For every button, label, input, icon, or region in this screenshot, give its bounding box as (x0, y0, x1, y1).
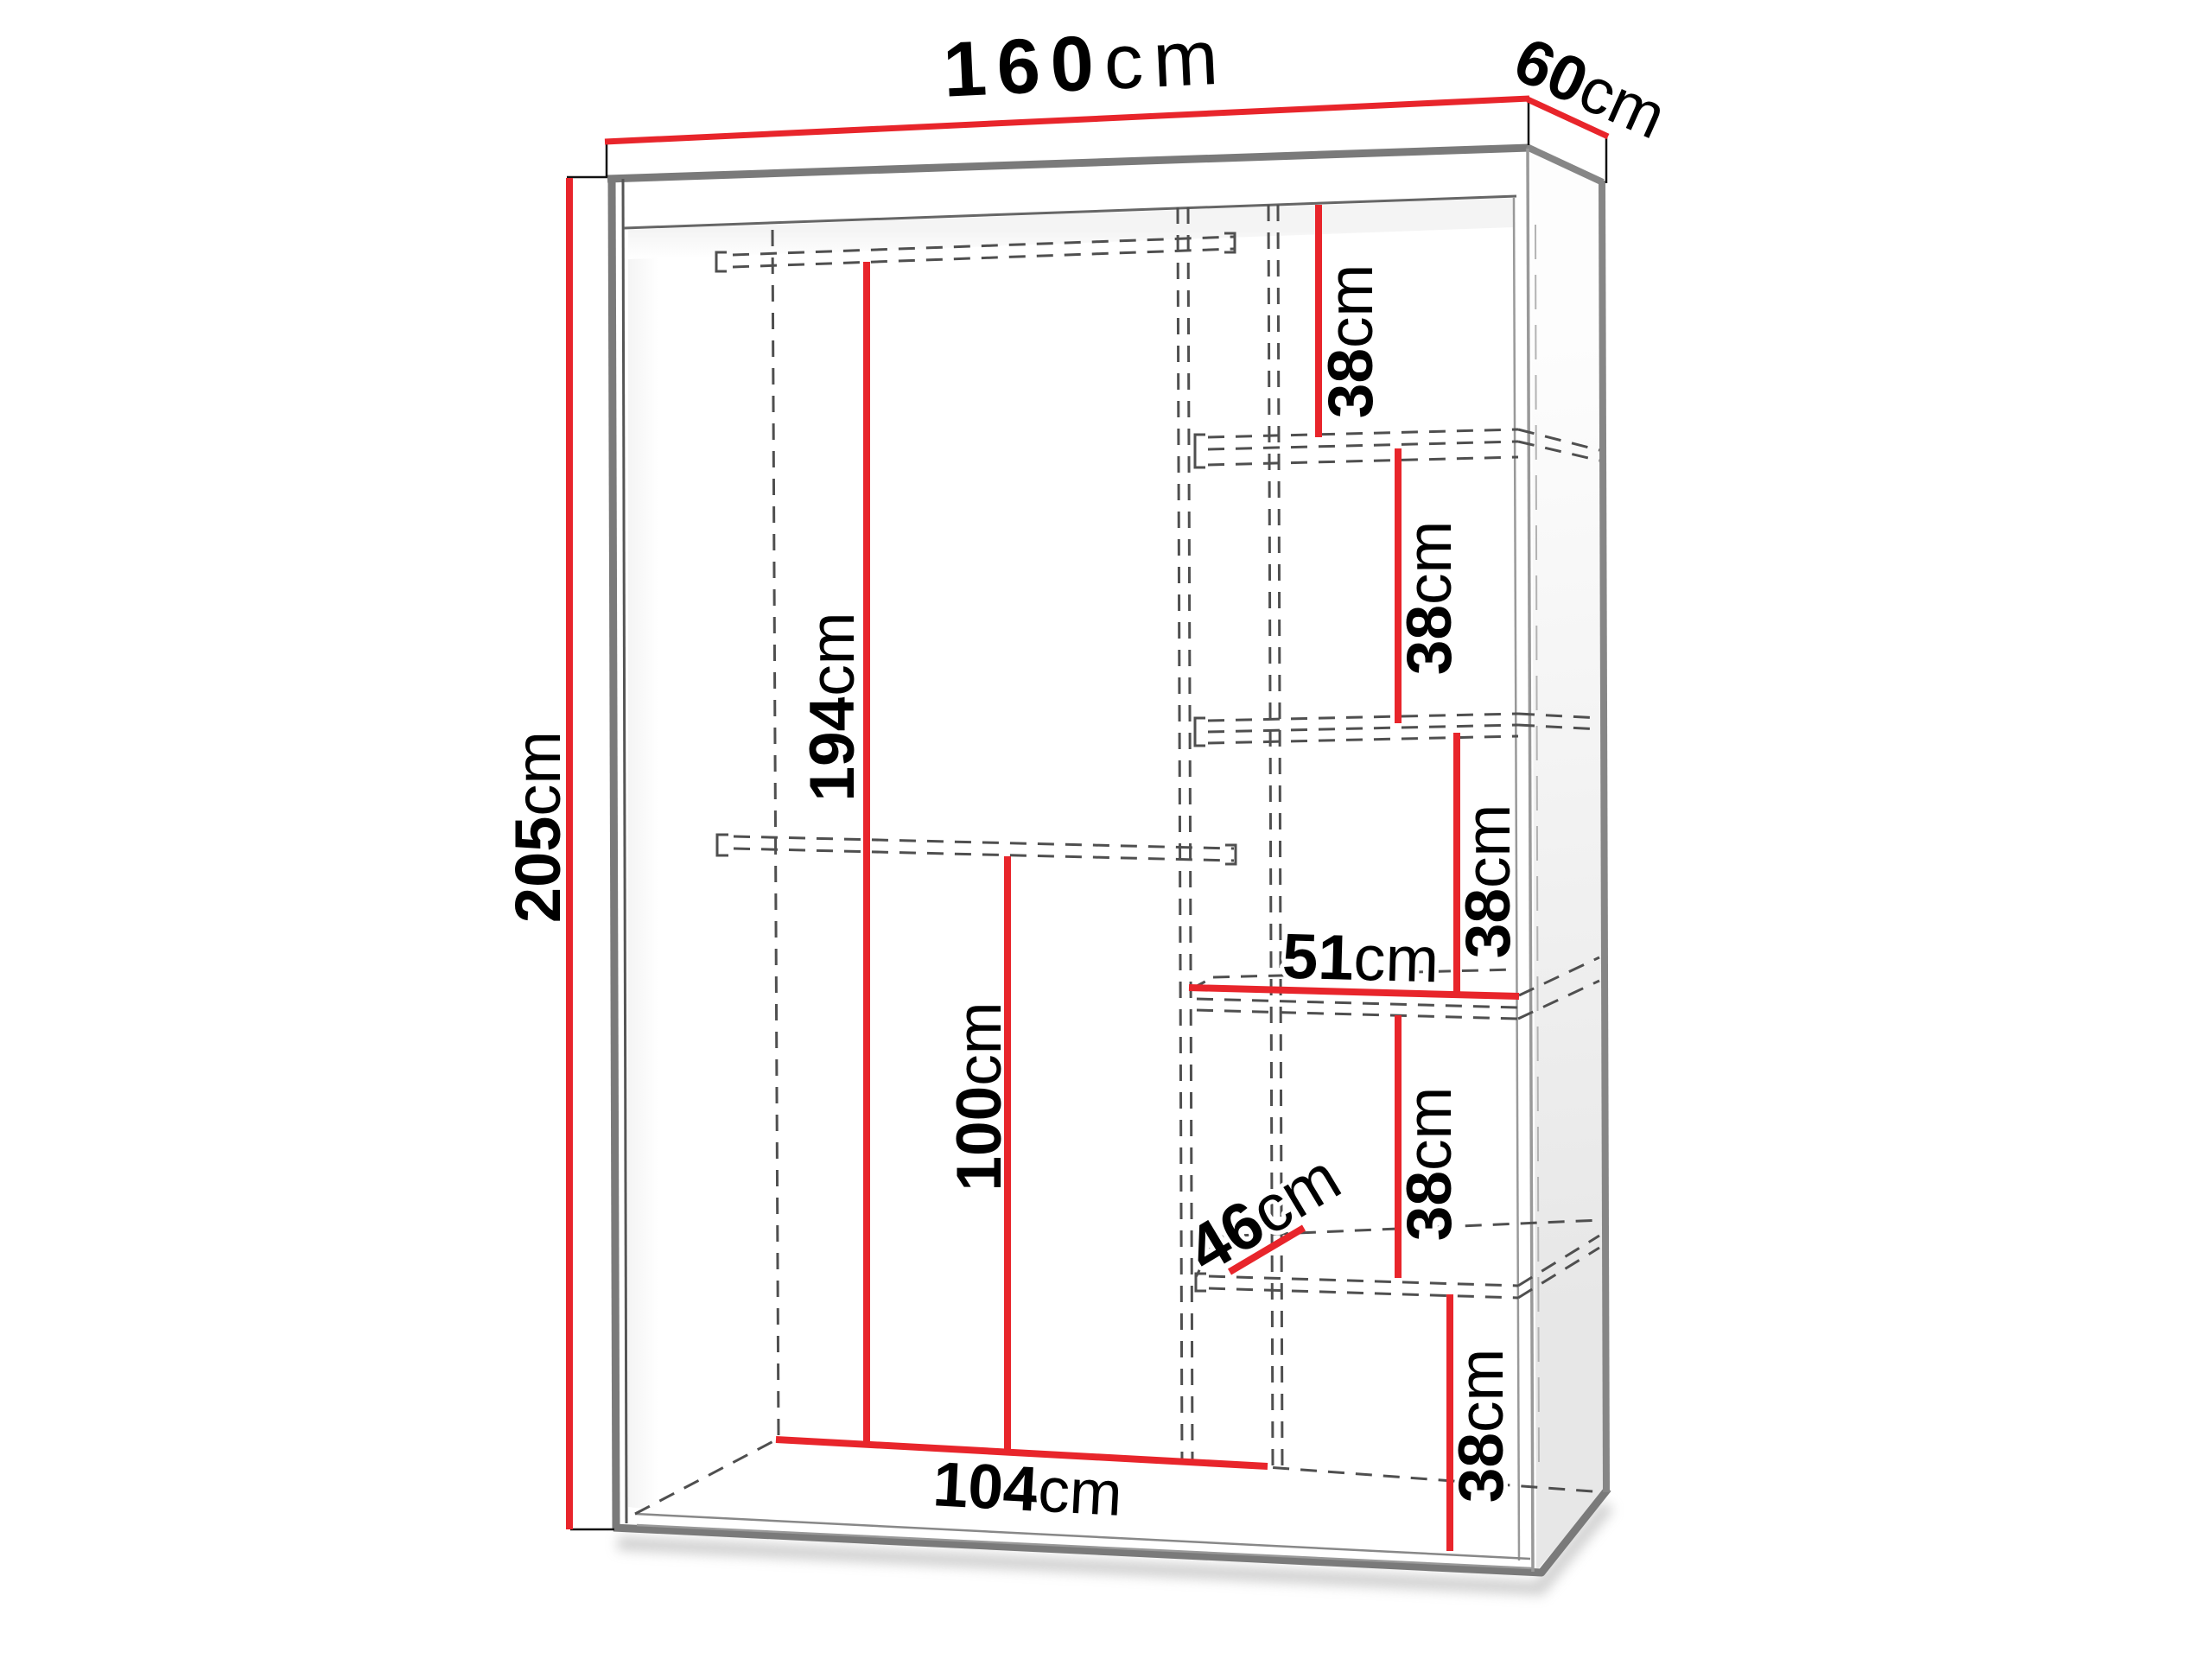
svg-text:205cm: 205cm (502, 731, 574, 923)
svg-text:38cm: 38cm (1453, 804, 1523, 959)
svg-text:38cm: 38cm (1395, 521, 1465, 676)
svg-text:104cm: 104cm (931, 1449, 1124, 1529)
svg-text:160cm: 160cm (941, 14, 1230, 113)
svg-text:38cm: 38cm (1395, 1087, 1465, 1242)
svg-text:51cm: 51cm (1281, 920, 1440, 996)
svg-text:38cm: 38cm (1446, 1349, 1516, 1503)
svg-text:38cm: 38cm (1316, 264, 1386, 419)
svg-text:100cm: 100cm (944, 1001, 1014, 1191)
svg-text:194cm: 194cm (798, 612, 868, 801)
